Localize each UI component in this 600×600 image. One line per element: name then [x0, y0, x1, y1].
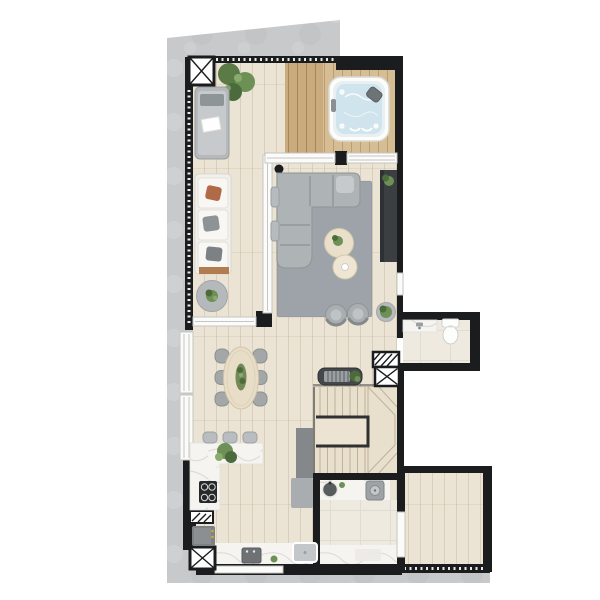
washer — [366, 481, 384, 500]
hot-tub — [329, 77, 389, 141]
throw-pillow-dark — [205, 246, 222, 262]
throw-pillow-gray — [202, 215, 220, 232]
kitchen-sink — [242, 548, 261, 563]
floor-plan — [0, 0, 600, 600]
kitchen-partition — [296, 428, 313, 478]
window-left-1 — [180, 332, 193, 393]
corner-cushion — [336, 176, 354, 193]
side-room-door — [397, 512, 405, 557]
toilet — [442, 319, 459, 344]
staircase — [313, 384, 397, 473]
duct-box-hatched — [373, 352, 399, 367]
side-room-floor — [405, 473, 483, 565]
small-plant — [271, 556, 278, 563]
service-bath-floor — [320, 500, 397, 545]
outdoor-sofa — [195, 174, 231, 274]
cooktop — [199, 481, 217, 503]
bottom-door — [215, 566, 283, 573]
chaise-lounge — [195, 87, 229, 159]
entry-door — [397, 273, 403, 295]
sofa-wood-ledge — [199, 267, 229, 274]
oven — [192, 526, 215, 546]
kitchen-cabinet-column — [291, 478, 313, 508]
spa-control — [331, 99, 336, 112]
tv-panel — [380, 170, 397, 262]
side-cushion — [271, 187, 279, 207]
stair-void — [316, 418, 366, 445]
side-cushion — [271, 221, 279, 241]
side-table-with-plant — [197, 281, 228, 312]
console-sideboard — [318, 368, 362, 385]
corner-plant — [377, 303, 396, 322]
deck-plank-strip — [285, 63, 323, 153]
deck-window — [347, 153, 397, 163]
floor-plan-canvas — [0, 0, 600, 600]
dining-set — [215, 347, 267, 409]
bar-stools — [203, 432, 257, 443]
column-dot — [275, 165, 284, 174]
bathroom-wall — [397, 312, 480, 320]
dining-centerpiece — [236, 364, 247, 391]
bath-mat — [355, 549, 381, 561]
top-railing-wall — [214, 56, 336, 63]
